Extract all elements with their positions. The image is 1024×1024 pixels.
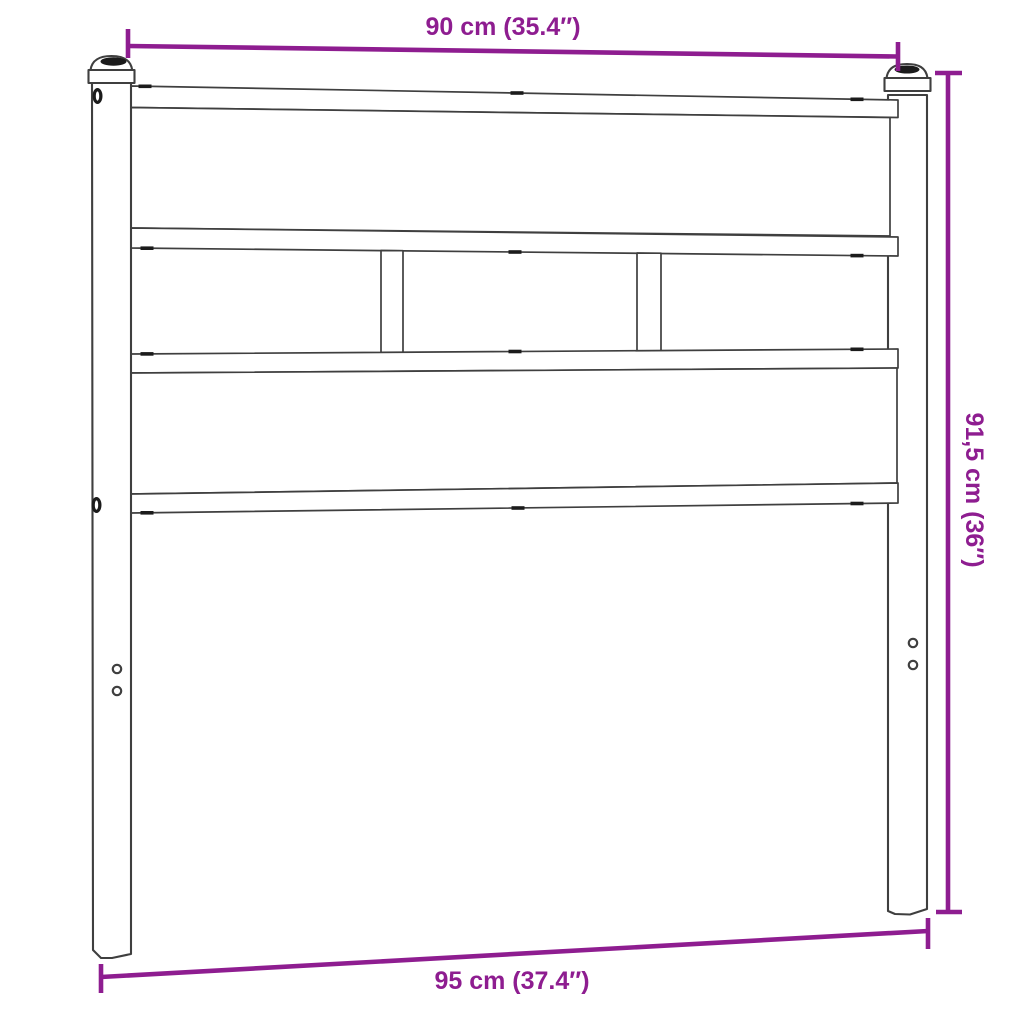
cap-top-dark <box>101 57 127 65</box>
left-post <box>92 83 131 958</box>
right-height-dimension: 91,5 cm (36″) <box>935 73 988 912</box>
screw-head <box>93 88 103 104</box>
right-post <box>888 95 927 915</box>
headboard-dimension-diagram: 90 cm (35.4″) 91,5 cm (36″) 95 cm (37.4″… <box>0 0 1024 1024</box>
upper-panel <box>131 108 890 237</box>
right-height-label: 91,5 cm (36″) <box>960 412 988 567</box>
bolt-hole <box>113 687 121 695</box>
divider-right <box>637 253 661 351</box>
top-width-dimension: 90 cm (35.4″) <box>128 13 898 71</box>
divider-left <box>381 251 403 353</box>
top-width-label: 90 cm (35.4″) <box>425 13 580 41</box>
dimension-line <box>128 46 898 57</box>
bolt-hole <box>909 639 917 647</box>
bottom-width-label: 95 cm (37.4″) <box>434 967 589 995</box>
bottom-width-dimension: 95 cm (37.4″) <box>101 918 928 995</box>
headboard-drawing <box>89 56 931 958</box>
lower-panel <box>131 368 897 494</box>
bolt-hole <box>113 665 121 673</box>
diagram-page: 90 cm (35.4″) 91,5 cm (36″) 95 cm (37.4″… <box>0 0 1024 1024</box>
screw-head <box>92 497 102 513</box>
bolt-hole <box>909 661 917 669</box>
left-post-cap <box>89 56 135 83</box>
right-post-cap <box>885 64 931 91</box>
